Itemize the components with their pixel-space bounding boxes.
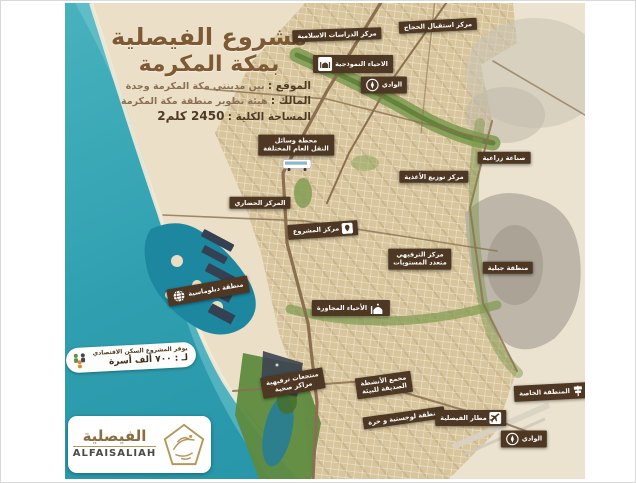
- signpost-icon: [573, 384, 584, 397]
- civic-center: المركز الحضاري: [229, 197, 290, 209]
- housing-badge-text: يوفر المشروع السكن الاقتصادي لـ : ٧٠٠ أل…: [93, 345, 189, 369]
- faisaliah-airport-label: مطار الفيصلية: [440, 414, 486, 422]
- logistics-free-zone: منطقة لوجستية و حرة: [362, 406, 445, 430]
- mountain-area: منطقة جبلية: [483, 262, 533, 274]
- project-center: مركز المشروع: [287, 220, 358, 240]
- mosque-icon: [370, 302, 385, 314]
- model-districts-label: الاحياء النموذجية: [335, 60, 388, 68]
- logistics-free-zone-label: منطقة لوجستية و حرة: [368, 409, 441, 427]
- agricultural-industry: صناعة زراعية: [478, 152, 531, 164]
- diplomatic-area-label: منطقة دبلوماسية: [188, 281, 244, 299]
- wadi-south: الوادي: [501, 431, 547, 448]
- compass-icon: [366, 79, 379, 92]
- adjacent-districts: الأحياء المجاورة: [312, 300, 390, 316]
- pin-icon: [342, 222, 354, 234]
- alfaisaliah-logo: الفيصلية ALFAISALIAH: [68, 416, 211, 473]
- transport-bus: [282, 159, 312, 172]
- logo-latin-name: ALFAISALIAH: [73, 447, 156, 461]
- mosque-badge-icon: [318, 57, 332, 71]
- wadi-north-label: الوادي: [382, 81, 402, 89]
- hajj-reception-center-label: مركز استقبال الحجاج: [404, 20, 473, 32]
- eco-friendly-complex: مجمع الأنشطةالصديقة للبيئة: [355, 371, 414, 399]
- islamic-studies-center: مركز الدراسات الاسلامية: [292, 27, 382, 43]
- special-zone: المنطقة الخاصة: [514, 382, 585, 402]
- globe-icon: [171, 289, 186, 304]
- bus-icon: [282, 159, 312, 172]
- special-zone-label: المنطقة الخاصة: [519, 387, 570, 398]
- resorts-health-centers-label: منتجعات ترفيهيةمراكز صحية: [265, 370, 320, 396]
- model-districts: الاحياء النموذجية: [313, 55, 393, 73]
- hajj-reception-center: مركز استقبال الحجاج: [399, 18, 478, 35]
- faisaliah-airport: مطار الفيصلية: [435, 410, 506, 426]
- project-map: مشروع الفيصلية بمكة المكرمة الموقع : بين…: [65, 3, 585, 479]
- islamic-studies-center-label: مركز الدراسات الاسلامية: [297, 29, 376, 40]
- mountain-area-label: منطقة جبلية: [488, 264, 528, 272]
- multilevel-entertainment-center: مركز الترفيهيمتعدد المستويات: [388, 249, 451, 270]
- food-distribution-center-label: مركز توزيع الأغذية: [404, 173, 463, 181]
- civic-center-label: المركز الحضاري: [234, 199, 285, 207]
- compass-icon: [506, 433, 519, 446]
- plane-icon: [490, 412, 502, 424]
- multilevel-entertainment-center-label: مركز الترفيهيمتعدد المستويات: [393, 251, 446, 268]
- public-transport-station: محطة وسائلالنقل العام المختلفة: [258, 135, 334, 156]
- wadi-north: الوادي: [361, 77, 407, 94]
- wadi-south-label: الوادي: [522, 435, 542, 443]
- resorts-health-centers: منتجعات ترفيهيةمراكز صحية: [260, 367, 326, 399]
- diplomatic-area: منطقة دبلوماسية: [166, 276, 250, 307]
- eco-friendly-complex-label: مجمع الأنشطةالصديقة للبيئة: [360, 373, 408, 396]
- food-distribution-center: مركز توزيع الأغذية: [399, 171, 468, 183]
- map-annotations: مركز استقبال الحجاجمركز الدراسات الاسلام…: [65, 3, 585, 479]
- pentagon-emblem-icon: [162, 422, 206, 468]
- screenshot-frame: مشروع الفيصلية بمكة المكرمة الموقع : بين…: [0, 0, 636, 483]
- agricultural-industry-label: صناعة زراعية: [483, 154, 526, 162]
- public-transport-station-label: محطة وسائلالنقل العام المختلفة: [263, 137, 329, 154]
- adjacent-districts-label: الأحياء المجاورة: [317, 304, 367, 312]
- project-center-label: مركز المشروع: [293, 225, 340, 237]
- logo-text: الفيصلية ALFAISALIAH: [73, 428, 156, 461]
- logo-arabic-name: الفيصلية: [73, 428, 156, 447]
- families-icon: [72, 352, 90, 369]
